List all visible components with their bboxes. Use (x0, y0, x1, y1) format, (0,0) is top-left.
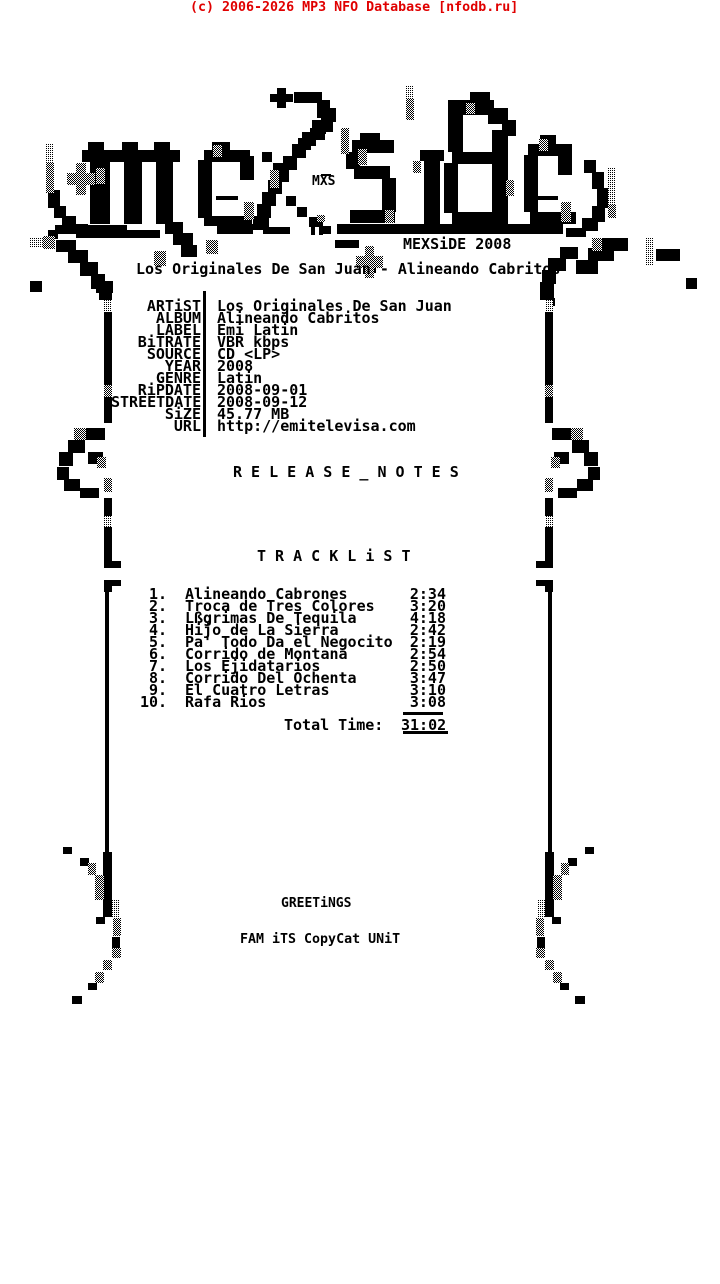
section-tracklist: T R A C K L i S T (257, 550, 411, 563)
total-time-label: Total Time: (284, 719, 383, 732)
logo-mxs-tag: MXS (312, 176, 335, 189)
logo-brand-year: MEXSiDE 2008 (403, 238, 511, 251)
release-title: Los Originales De San Juan - Alineando C… (136, 263, 560, 276)
track-number: 10. (140, 696, 167, 709)
crew-line: FAM iTS CopyCat UNiT (240, 934, 400, 947)
track-time: 3:08 (401, 696, 446, 709)
track-title: Rafa Rios (185, 696, 266, 709)
section-release-notes: R E L E A S E _ N O T E S (233, 466, 459, 479)
info-value[interactable]: http://emitelevisa.com (217, 420, 416, 433)
total-time-value: 31:02 (401, 719, 446, 732)
nfo-page: (c) 2006-2026 MP3 NFO Database [nfodb.ru… (0, 0, 720, 1284)
greetings-heading: GREETiNGS (281, 898, 351, 911)
info-label: URL (111, 420, 201, 433)
watermark-header: (c) 2006-2026 MP3 NFO Database [nfodb.ru… (190, 2, 518, 15)
